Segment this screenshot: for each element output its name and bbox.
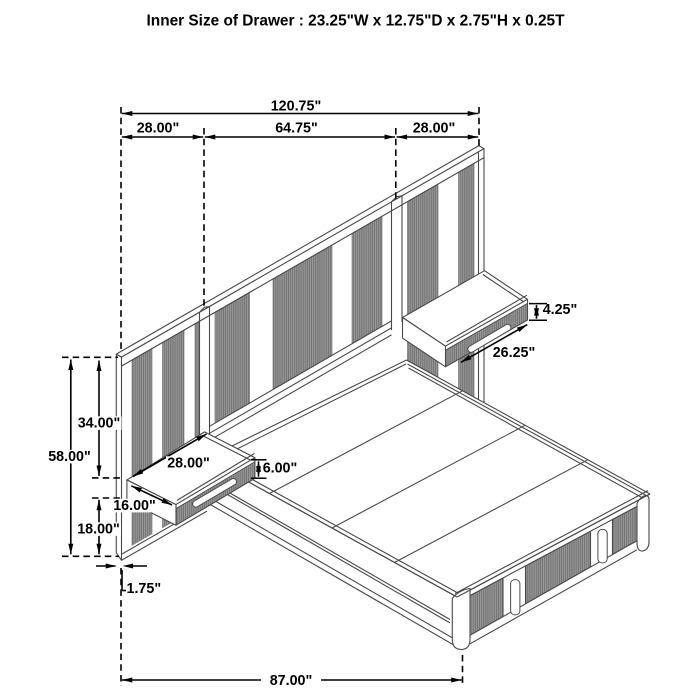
svg-text:87.00": 87.00": [270, 673, 313, 689]
svg-text:28.00": 28.00": [137, 120, 180, 136]
svg-text:28.00": 28.00": [167, 456, 210, 472]
svg-text:34.00": 34.00": [78, 416, 121, 432]
svg-text:120.75": 120.75": [271, 99, 322, 115]
svg-text:28.00": 28.00": [413, 120, 456, 136]
svg-text:26.25": 26.25": [493, 345, 536, 361]
svg-text:6.00": 6.00": [263, 461, 298, 477]
svg-text:Inner Size of Drawer : 23.25"W: Inner Size of Drawer : 23.25"W x 12.75"D…: [147, 12, 566, 29]
svg-text:16.00": 16.00": [113, 498, 156, 514]
svg-text:64.75": 64.75": [275, 120, 318, 136]
svg-text:4.25": 4.25": [543, 302, 578, 318]
svg-text:18.00": 18.00": [77, 522, 120, 538]
svg-text:1.75": 1.75": [127, 581, 162, 597]
svg-text:58.00": 58.00": [48, 449, 91, 465]
